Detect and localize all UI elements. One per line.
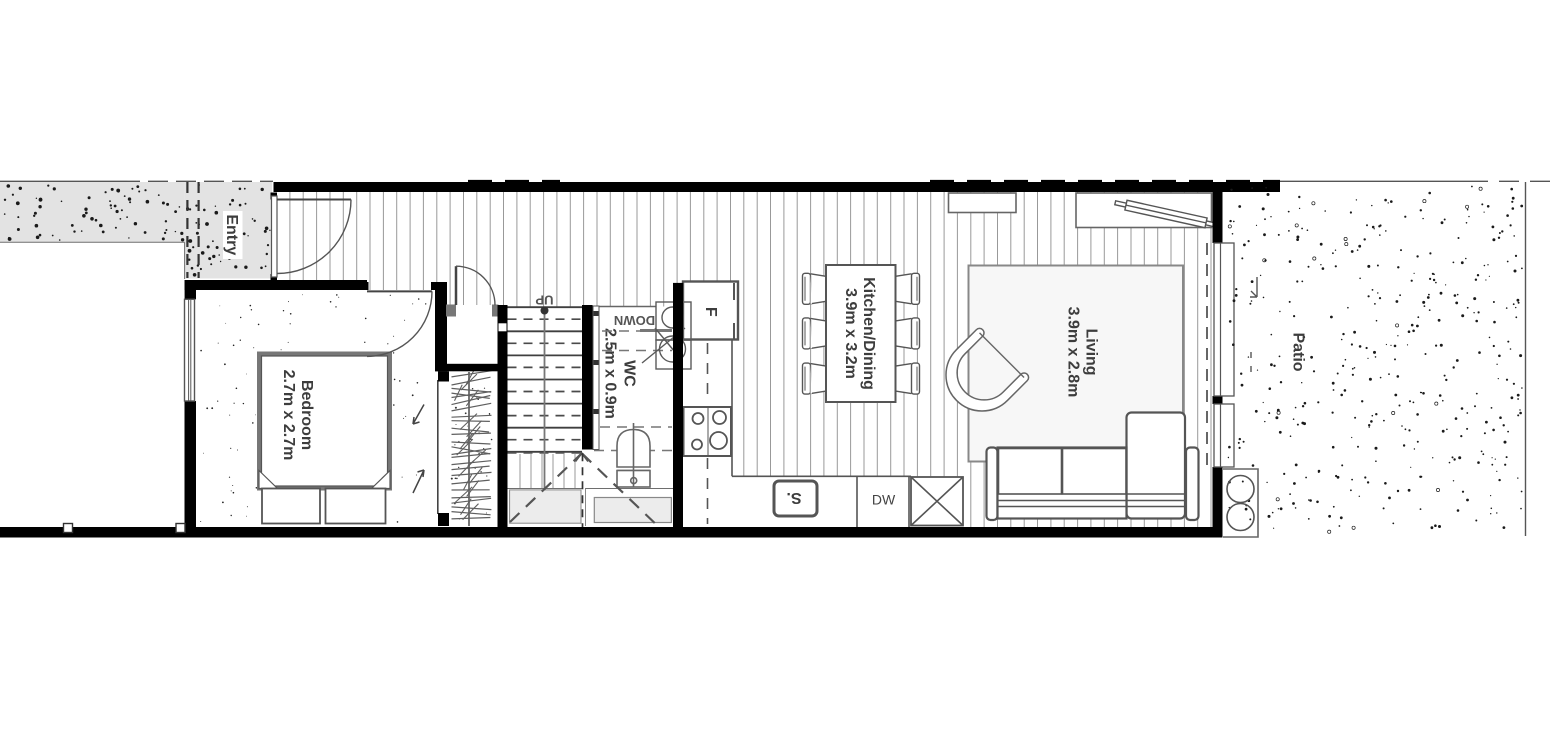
svg-text:Living: Living xyxy=(1083,328,1100,375)
svg-text:Bedroom: Bedroom xyxy=(298,380,315,450)
svg-text:Patio: Patio xyxy=(1290,332,1307,371)
svg-text:2.5m x 0.9m: 2.5m x 0.9m xyxy=(602,328,619,419)
svg-text:F: F xyxy=(702,307,719,317)
svg-text:Kitchen/Dining: Kitchen/Dining xyxy=(860,277,877,390)
svg-text:2.7m x 2.7m: 2.7m x 2.7m xyxy=(280,370,297,461)
svg-text:WC: WC xyxy=(621,360,638,387)
svg-text:Entry: Entry xyxy=(223,214,240,255)
svg-text:DW: DW xyxy=(872,492,896,508)
svg-text:S.: S. xyxy=(786,489,801,506)
svg-text:3.9m x 3.2m: 3.9m x 3.2m xyxy=(842,288,859,379)
svg-text:3.9m x 2.8m: 3.9m x 2.8m xyxy=(1065,307,1082,398)
svg-text:UP: UP xyxy=(535,293,553,308)
svg-text:DOWN: DOWN xyxy=(614,313,655,328)
